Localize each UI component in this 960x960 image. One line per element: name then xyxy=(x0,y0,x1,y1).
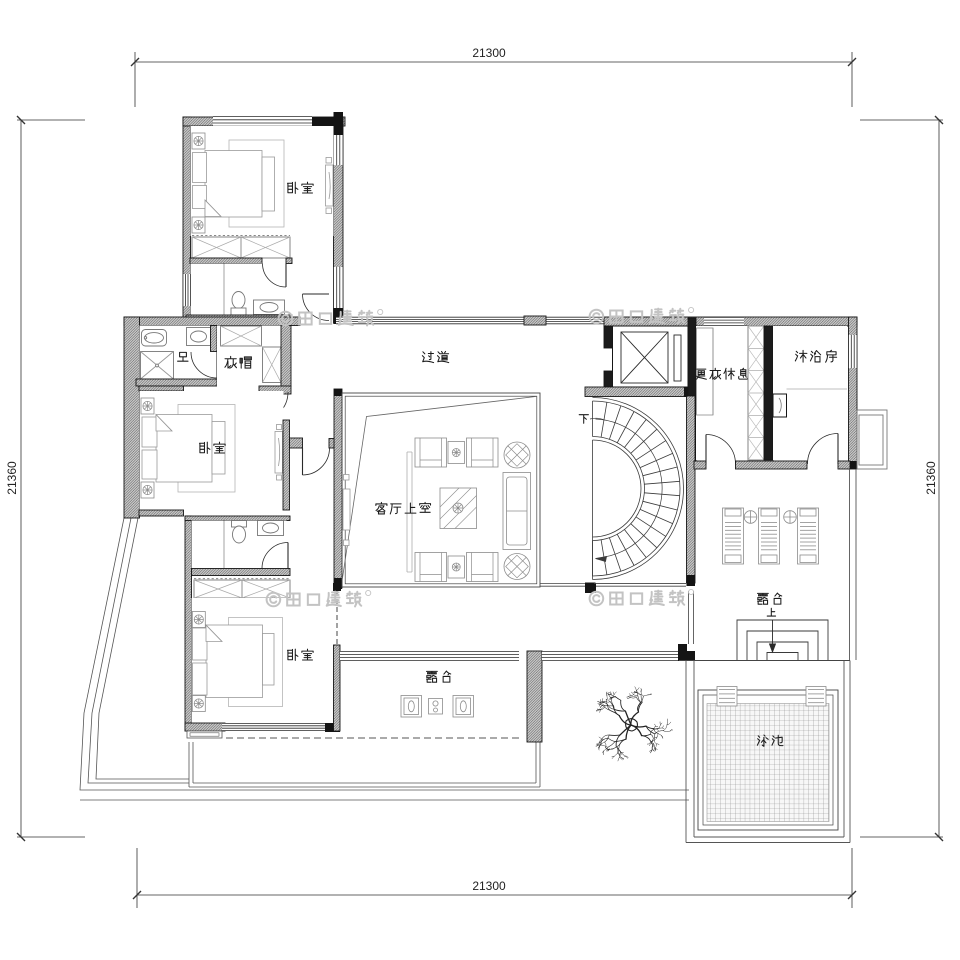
svg-text:21360: 21360 xyxy=(5,461,19,495)
svg-text:21300: 21300 xyxy=(472,879,506,893)
svg-text:21360: 21360 xyxy=(924,461,938,495)
svg-text:21300: 21300 xyxy=(472,46,506,60)
